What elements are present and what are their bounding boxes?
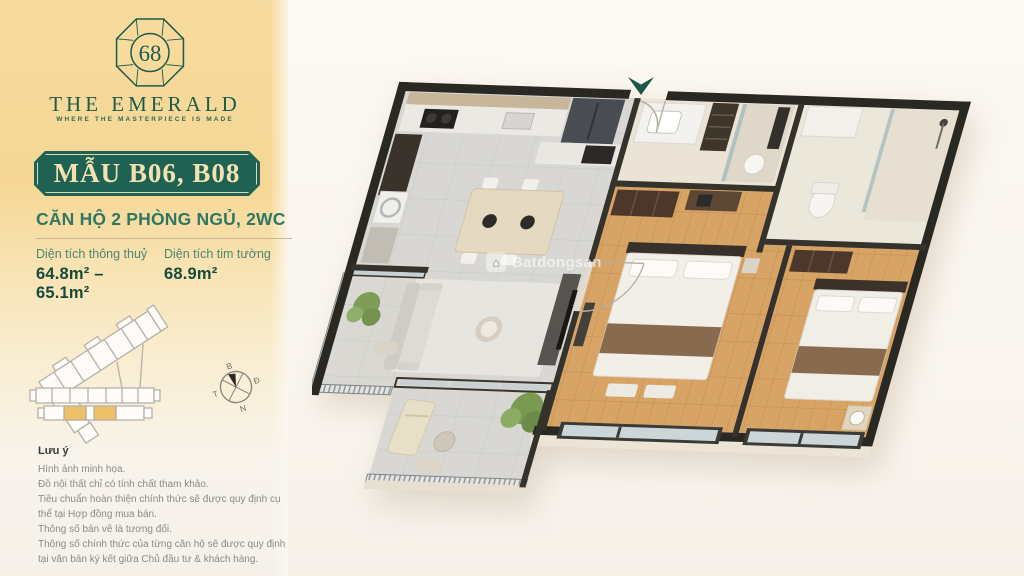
oven <box>581 145 616 164</box>
wardrobe <box>610 190 679 218</box>
poster: 68 THE EMERALD WHERE THE MASTERPIECE IS … <box>0 0 1024 576</box>
floor-plan-area: ⌂ Batdongsan <box>0 0 1024 576</box>
wardrobe <box>789 250 853 274</box>
floor-plan-render <box>312 76 1024 522</box>
living-room <box>382 268 582 377</box>
